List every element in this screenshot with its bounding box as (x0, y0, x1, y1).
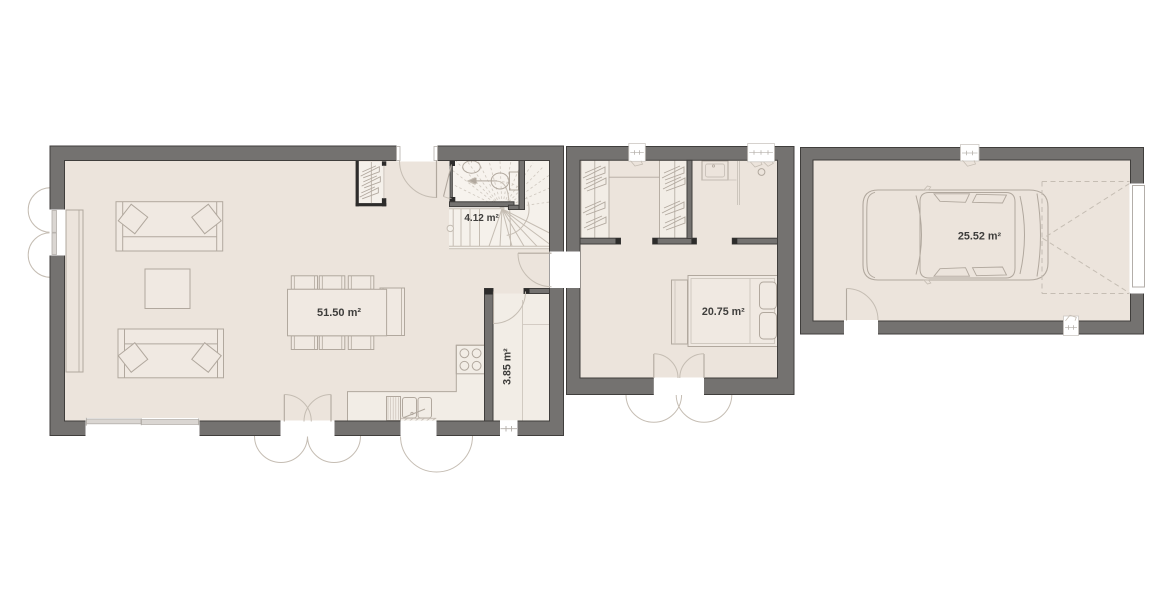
svg-text:51.50 m²: 51.50 m² (317, 307, 361, 319)
svg-text:25.52 m²: 25.52 m² (958, 231, 1002, 243)
svg-text:20.75 m²: 20.75 m² (702, 306, 745, 318)
svg-text:4.12 m²: 4.12 m² (464, 213, 499, 224)
svg-text:3.85 m²: 3.85 m² (501, 348, 513, 385)
